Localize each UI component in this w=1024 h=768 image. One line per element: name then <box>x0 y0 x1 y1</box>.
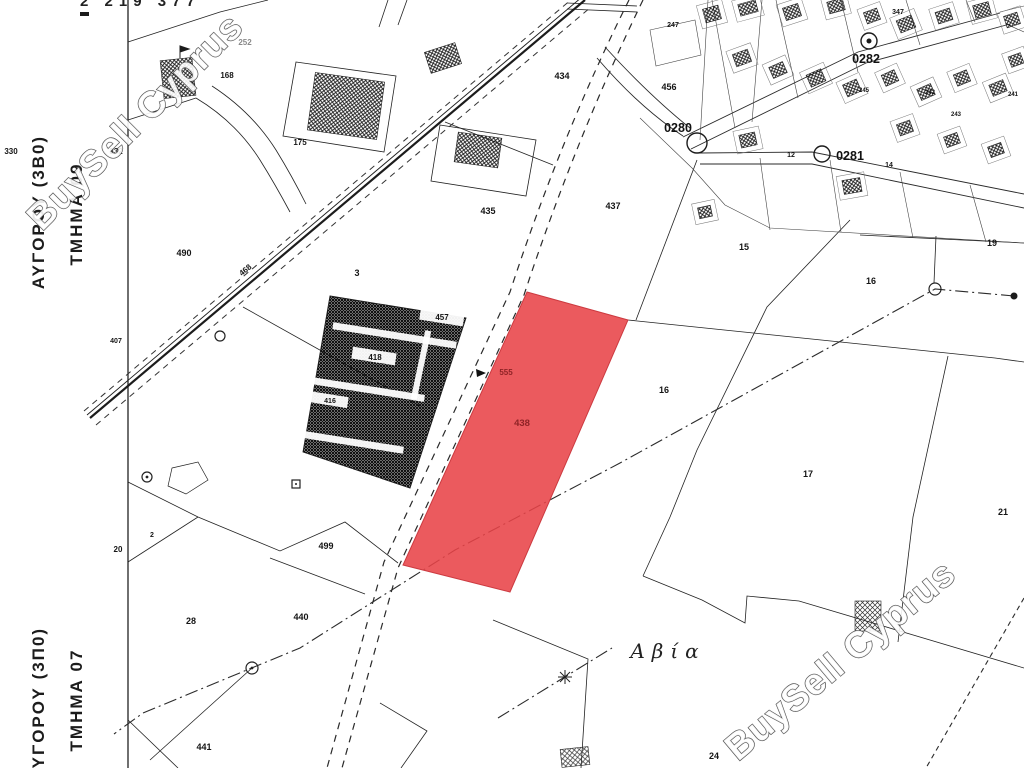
parcel-label-28: 28 <box>186 616 196 626</box>
parcel-label-20: 20 <box>114 545 123 554</box>
building <box>424 43 461 74</box>
sheet-reference-tick <box>80 12 89 16</box>
star-symbol <box>558 670 572 684</box>
parcel-label-418: 418 <box>368 353 382 362</box>
sheet-reference: 2 219 377 <box>80 0 201 10</box>
place-name-avia: Αβία <box>628 639 705 663</box>
building <box>827 0 846 14</box>
parcel-label-24: 24 <box>709 751 719 761</box>
building <box>560 747 590 768</box>
parcel-label-434: 434 <box>554 71 569 81</box>
parcel-label-2: 2 <box>150 532 154 539</box>
parcel-label-441: 441 <box>196 742 211 752</box>
parcel-label-243: 243 <box>951 112 962 118</box>
survey-point-dot-0282 <box>867 39 872 44</box>
parcel-label-15: 15 <box>739 242 749 252</box>
parcel-label-17: 17 <box>803 469 813 479</box>
highlighted-parcel-number: 438 <box>514 418 530 429</box>
parcel-label-499: 499 <box>318 541 333 551</box>
building <box>953 70 970 86</box>
survey-point-label-0280: 0280 <box>664 121 692 135</box>
parcel-label-490: 490 <box>176 248 191 258</box>
building <box>881 70 899 87</box>
building <box>307 72 384 139</box>
region-label-avgorou-07: ΑΥΓΟΡΟΥ (3Π0) <box>29 627 48 768</box>
building <box>896 15 916 33</box>
parcel-label-416: 416 <box>324 398 336 405</box>
building <box>842 178 862 195</box>
parcel-label-21: 21 <box>998 507 1008 517</box>
parcel-label-12: 12 <box>787 152 795 159</box>
building <box>697 205 712 218</box>
parcel-label-468: 468 <box>237 262 253 278</box>
parcel-label-175: 175 <box>293 138 307 147</box>
parcel-label-168: 168 <box>220 71 234 80</box>
parcel-label-347: 347 <box>892 9 904 16</box>
settlement-block-lines <box>640 0 1024 243</box>
highlighted-parcel-secondary-number: 555 <box>499 368 513 377</box>
parcel-label-16: 16 <box>659 385 669 395</box>
parcel-label-16: 16 <box>866 276 876 286</box>
parcel-label-19: 19 <box>987 238 997 248</box>
parcel-label-14: 14 <box>885 162 893 169</box>
building <box>935 8 953 24</box>
cadastral-map: 2521681753303324904683407434456247435437… <box>0 0 1024 768</box>
building <box>944 132 961 147</box>
building <box>896 120 913 136</box>
parcel-label-440: 440 <box>293 612 308 622</box>
parcel-label-242: 242 <box>925 90 936 96</box>
watermark-top-left: BuySell Cyprus <box>19 5 251 237</box>
building <box>782 3 801 20</box>
building <box>863 8 880 24</box>
building <box>702 5 721 23</box>
parcel-label-330: 330 <box>4 147 18 156</box>
building <box>738 0 758 16</box>
building <box>454 132 502 168</box>
parcel-label-3: 3 <box>354 268 359 278</box>
parcel-label-247: 247 <box>667 22 679 29</box>
watermark-bottom-right: BuySell Cyprus <box>717 552 964 768</box>
parcel-label-437: 437 <box>605 201 620 211</box>
parcel-label-457: 457 <box>435 313 449 322</box>
building <box>988 142 1005 157</box>
survey-point-label-0281: 0281 <box>836 149 864 163</box>
building <box>1008 53 1024 68</box>
building <box>769 61 788 78</box>
parcel-label-241: 241 <box>1008 92 1019 98</box>
village-streets <box>597 13 1024 208</box>
building <box>989 80 1007 97</box>
survey-point-label-0282: 0282 <box>852 52 880 66</box>
parcel-label-407: 407 <box>110 338 122 345</box>
map-viewport: 2521681753303324904683407434456247435437… <box>0 0 1024 768</box>
section-label-tmima-07: ΤΜΗΜΑ 07 <box>67 649 86 752</box>
parcel-label-245: 245 <box>859 88 870 94</box>
building-cluster <box>292 296 466 488</box>
building <box>739 132 757 148</box>
building <box>732 49 751 67</box>
parcel-label-435: 435 <box>480 206 495 216</box>
parcel-label-456: 456 <box>661 82 676 92</box>
parcel-corner-marker <box>476 369 486 377</box>
